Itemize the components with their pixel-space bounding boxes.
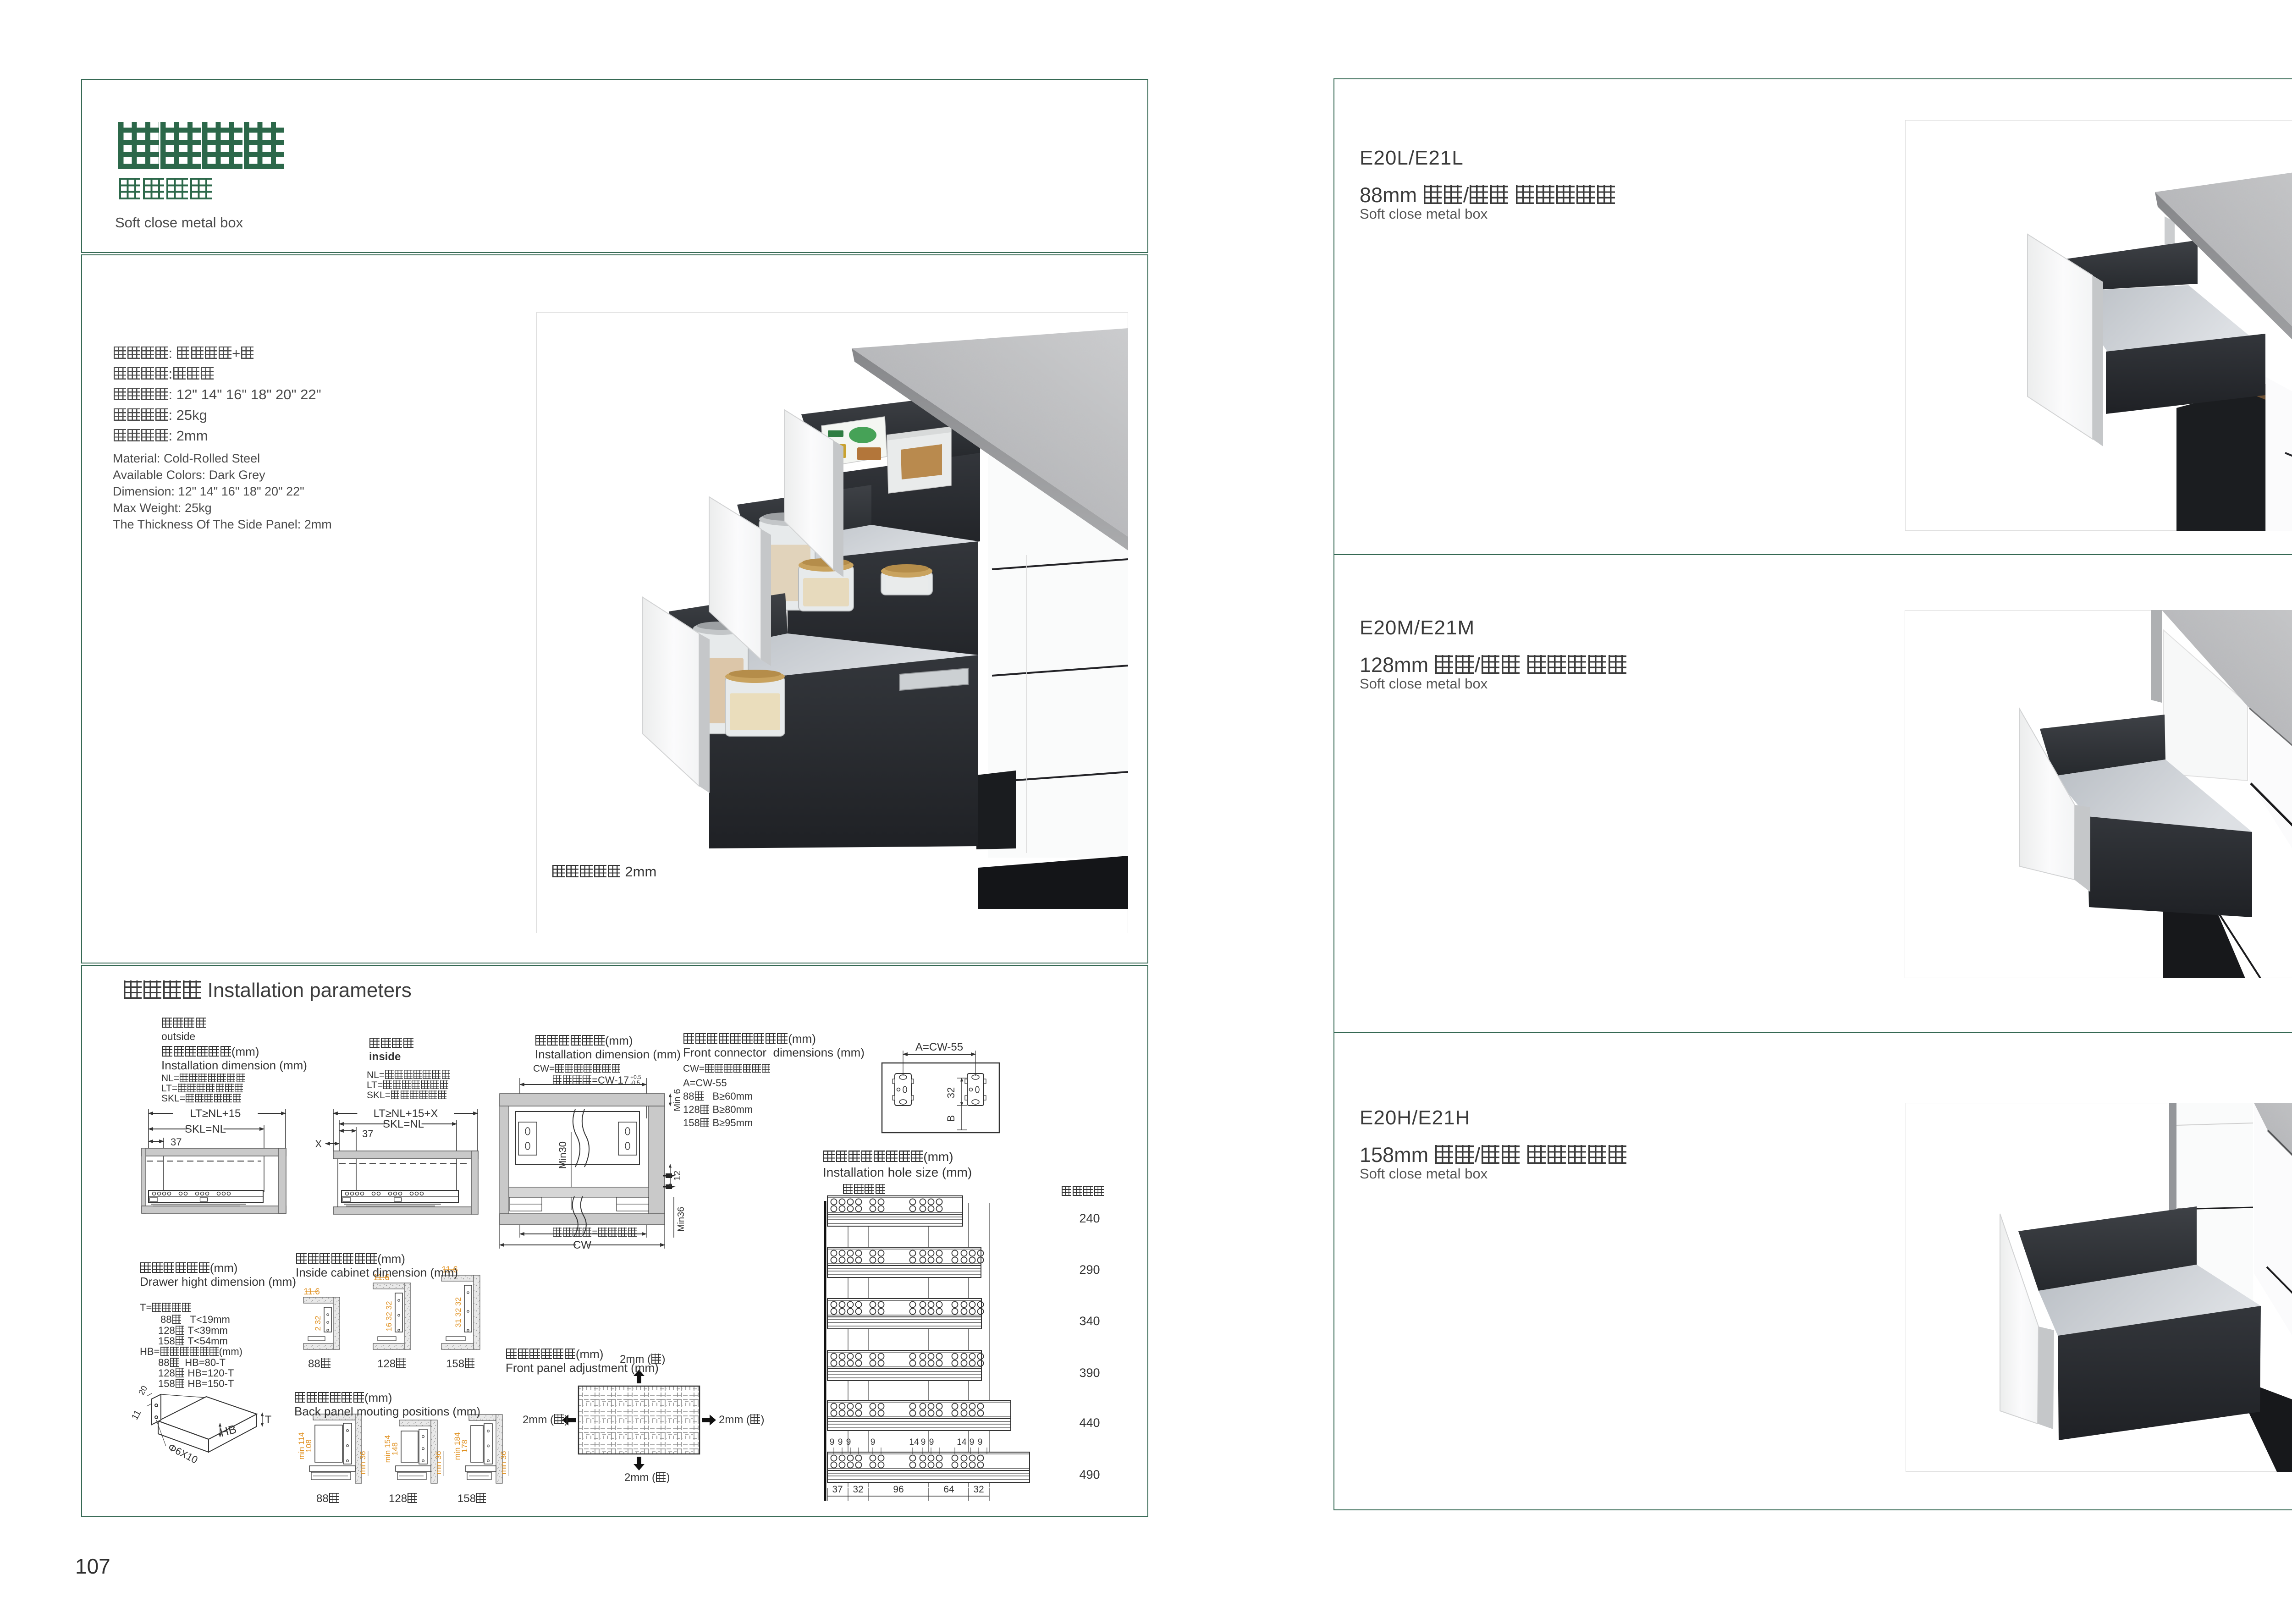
svg-text:min 36: min 36 [434,1451,443,1474]
svg-text:340: 340 [1079,1314,1100,1328]
svg-text:min 36: min 36 [358,1451,367,1474]
svg-text:64: 64 [943,1484,954,1495]
svg-text:14: 14 [909,1437,919,1447]
svg-text:B: B [945,1115,957,1122]
svg-text:9: 9 [970,1437,975,1447]
svg-text:Min 6: Min 6 [672,1089,683,1112]
svg-text:178: 178 [460,1440,469,1453]
svg-text:20: 20 [137,1384,149,1397]
svg-text:37: 37 [362,1128,373,1140]
svg-text:9: 9 [838,1437,843,1447]
svg-text:148: 148 [391,1442,399,1455]
svg-text:SKL=NL: SKL=NL [185,1123,226,1135]
svg-text:Min30: Min30 [557,1141,568,1169]
svg-text:490: 490 [1079,1468,1100,1481]
svg-text:16 32 32: 16 32 32 [385,1301,393,1331]
svg-text:LT≥NL+15: LT≥NL+15 [190,1107,241,1120]
svg-text:290: 290 [1079,1263,1100,1277]
svg-text:32: 32 [945,1087,957,1098]
svg-text:32: 32 [973,1484,984,1495]
svg-text:390: 390 [1079,1366,1100,1380]
svg-text:12: 12 [672,1171,683,1181]
svg-text:37: 37 [171,1136,182,1148]
svg-text:2 32: 2 32 [314,1316,322,1331]
svg-text:108: 108 [304,1439,313,1452]
svg-text:440: 440 [1079,1416,1100,1430]
svg-text:32: 32 [853,1484,863,1495]
svg-text:T: T [265,1414,272,1426]
svg-text:9: 9 [871,1437,876,1447]
svg-text:Min36: Min36 [676,1207,686,1232]
svg-text:240: 240 [1079,1211,1100,1225]
svg-text:9: 9 [921,1437,926,1447]
svg-text:31 32 32: 31 32 32 [454,1297,463,1327]
svg-text:X: X [315,1138,322,1150]
svg-text:14: 14 [957,1437,967,1447]
svg-text:SKL=NL: SKL=NL [383,1118,424,1130]
svg-text:CW: CW [573,1239,591,1251]
svg-text:11: 11 [130,1409,143,1422]
svg-text:37: 37 [832,1484,843,1495]
svg-text:9: 9 [929,1437,934,1447]
svg-text:A=CW-55: A=CW-55 [915,1041,963,1053]
svg-text:96: 96 [893,1484,904,1495]
svg-text:9: 9 [830,1437,835,1447]
svg-text:9: 9 [846,1437,851,1447]
svg-text:min 36: min 36 [499,1451,508,1474]
svg-text:9: 9 [978,1437,983,1447]
